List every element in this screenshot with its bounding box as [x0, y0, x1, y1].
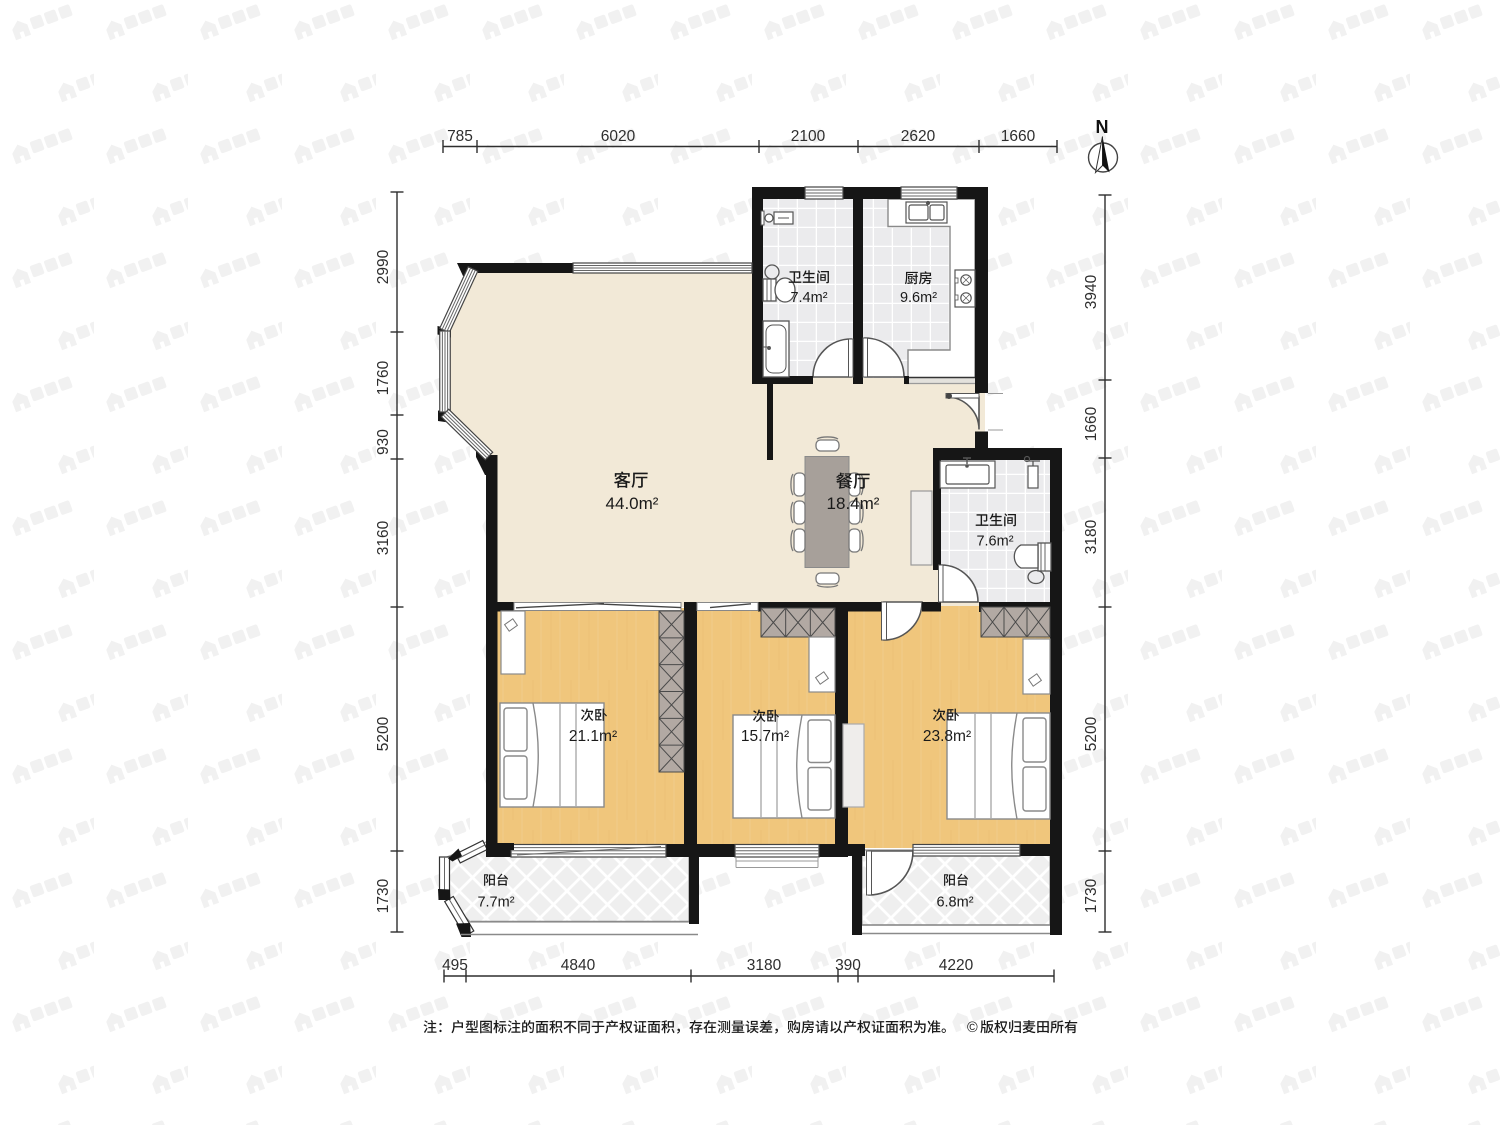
svg-text:1660: 1660: [1083, 406, 1100, 441]
svg-text:7.6m²: 7.6m²: [976, 534, 1013, 550]
svg-text:1730: 1730: [1083, 878, 1100, 913]
svg-text:44.0m²: 44.0m²: [606, 494, 659, 513]
svg-text:2620: 2620: [901, 128, 936, 145]
svg-text:5200: 5200: [1083, 716, 1100, 751]
svg-text:3940: 3940: [1083, 274, 1100, 309]
svg-text:N: N: [1096, 117, 1109, 137]
svg-text:5200: 5200: [375, 716, 392, 751]
svg-text:4220: 4220: [939, 957, 974, 974]
svg-text:390: 390: [835, 957, 861, 974]
svg-text:3180: 3180: [1083, 519, 1100, 554]
svg-text:6020: 6020: [601, 128, 636, 145]
svg-text:7.7m²: 7.7m²: [477, 895, 514, 911]
svg-text:3160: 3160: [375, 520, 392, 555]
svg-text:1760: 1760: [375, 360, 392, 395]
svg-text:18.4m²: 18.4m²: [827, 494, 880, 513]
svg-text:4840: 4840: [561, 957, 596, 974]
svg-text:3180: 3180: [747, 957, 782, 974]
svg-text:7.4m²: 7.4m²: [790, 290, 827, 306]
svg-text:6.8m²: 6.8m²: [936, 895, 973, 911]
svg-text:2990: 2990: [375, 249, 392, 284]
svg-text:©: ©: [967, 1020, 978, 1036]
svg-text:930: 930: [375, 429, 392, 455]
svg-text:1730: 1730: [375, 878, 392, 913]
svg-text:495: 495: [442, 957, 468, 974]
svg-text:21.1m²: 21.1m²: [569, 728, 617, 745]
svg-text:1660: 1660: [1001, 128, 1036, 145]
svg-text:2100: 2100: [791, 128, 826, 145]
svg-text:785: 785: [447, 128, 473, 145]
svg-text:9.6m²: 9.6m²: [900, 290, 937, 306]
svg-text:15.7m²: 15.7m²: [741, 728, 789, 745]
svg-text:23.8m²: 23.8m²: [923, 728, 971, 745]
